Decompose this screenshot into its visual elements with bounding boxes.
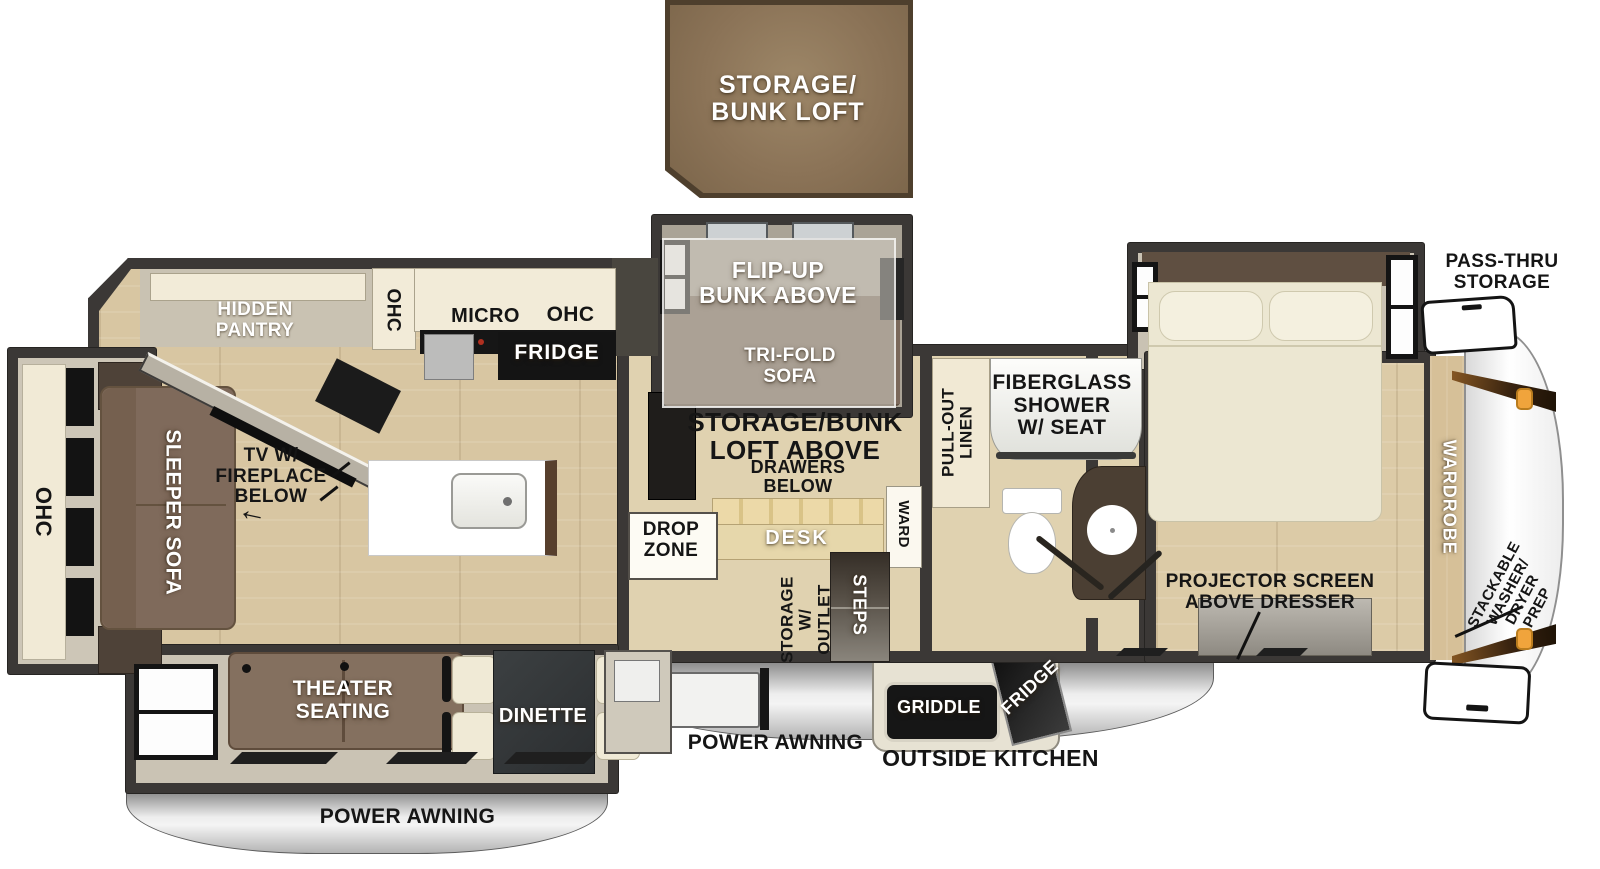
fridge-label: FRIDGE	[502, 342, 612, 365]
awning-bracket-right	[760, 668, 769, 730]
cupholder	[242, 664, 251, 673]
desk-label: DESK	[742, 528, 852, 550]
window-pane	[139, 714, 213, 755]
floorplan-canvas: STORAGE/ BUNK LOFT FLIP-UP BUNK ABOVE TR…	[0, 0, 1600, 869]
burner	[478, 339, 484, 345]
rear-cabinet-slot-2	[66, 438, 94, 496]
rear-power-awning-label: POWER AWNING	[300, 806, 515, 829]
tri-fold-sofa-label: TRI-FOLD SOFA	[700, 346, 880, 387]
hatch-handle	[1466, 704, 1488, 711]
drop-zone-label: DROP ZONE	[628, 520, 714, 561]
headboard	[1142, 252, 1410, 286]
shower-glass	[996, 452, 1136, 459]
pillow-right	[1269, 291, 1373, 341]
micro-label: MICRO	[438, 306, 533, 328]
wall-bath-hall-bottom	[1086, 618, 1098, 662]
window-pane	[1391, 260, 1413, 305]
floor-vent	[386, 752, 478, 764]
wardrobe-label: WARDROBE	[1439, 440, 1458, 552]
entry-door-window	[614, 660, 660, 702]
rear-cabinet-slot-3	[66, 508, 94, 566]
sink-drain	[503, 497, 512, 506]
pull-out-linen-label: PULL-OUT LINEN	[940, 386, 977, 478]
sleeper-sofa-label: SLEEPER SOFA	[161, 425, 184, 599]
floor-vent	[504, 752, 596, 764]
wall-kitchen-nook	[612, 258, 658, 356]
window-pane	[1391, 309, 1413, 354]
theater-seating-label: THEATER SEATING	[258, 678, 428, 723]
fiberglass-shower-label: FIBERGLASS SHOWER W/ SEAT	[972, 372, 1152, 440]
rear-ohc-label: OHC	[31, 482, 55, 542]
sink-drain	[1110, 528, 1115, 533]
bedroom-window-right	[1386, 255, 1418, 359]
pass-thru-hatch-bottom	[1423, 661, 1532, 724]
bed-seam	[1149, 345, 1381, 347]
kitchen-island	[368, 460, 557, 556]
kitchen-dish-rack	[424, 334, 474, 380]
dinette-chair-back	[442, 656, 451, 702]
kitchen-ohc-label: OHC	[382, 286, 403, 334]
rear-cabinet-slot-4	[66, 578, 94, 636]
projector-screen-label: PROJECTOR SCREEN ABOVE DRESSER	[1150, 572, 1390, 613]
floor-vent	[1116, 648, 1168, 656]
storage-bunk-loft-above-label: STORAGE/BUNK LOFT ABOVE	[650, 408, 940, 464]
floor-vent	[1256, 648, 1308, 656]
pillow-left	[1159, 291, 1263, 341]
cupholder	[340, 662, 349, 671]
loft-callout-label: STORAGE/ BUNK LOFT	[688, 72, 888, 126]
hidden-pantry-label: HIDDEN PANTRY	[170, 300, 340, 341]
sofa-back	[102, 388, 136, 628]
flip-up-bunk-label: FLIP-UP BUNK ABOVE	[664, 258, 892, 308]
floor-vent	[230, 752, 338, 764]
bath-vanity	[1072, 466, 1146, 600]
entry-step-panel	[668, 672, 760, 728]
griddle-label: GRIDDLE	[888, 698, 990, 717]
ward-label: WARD	[895, 498, 911, 550]
toilet-tank	[1002, 488, 1062, 514]
window-pane	[139, 669, 213, 710]
pantry-ohc	[150, 273, 366, 301]
rear-cabinet-slot-1	[66, 368, 94, 426]
bed	[1148, 282, 1382, 522]
vanity-sink	[1087, 505, 1137, 555]
ohc-top-label: OHC	[528, 304, 613, 327]
main-power-awning-label: POWER AWNING	[668, 732, 883, 755]
entry-door	[604, 650, 672, 754]
steps-label: STEPS	[849, 574, 868, 636]
pass-thru-hatch-top	[1420, 295, 1518, 355]
dinette-label: DINETTE	[468, 706, 618, 728]
island-sink	[451, 473, 527, 529]
storage-w-outlet-label: STORAGE W/ OUTLET	[778, 572, 833, 668]
hatch-handle	[1462, 304, 1482, 310]
desk-drawers	[712, 498, 884, 526]
outside-kitchen-label: OUTSIDE KITCHEN	[858, 746, 1123, 771]
living-slide-window	[134, 664, 218, 760]
dinette-chair	[452, 656, 496, 704]
drawers-below-label: DRAWERS BELOW	[718, 458, 878, 497]
pass-thru-storage-label: PASS-THRU STORAGE	[1424, 252, 1580, 293]
cap-marker-top	[1516, 388, 1533, 410]
